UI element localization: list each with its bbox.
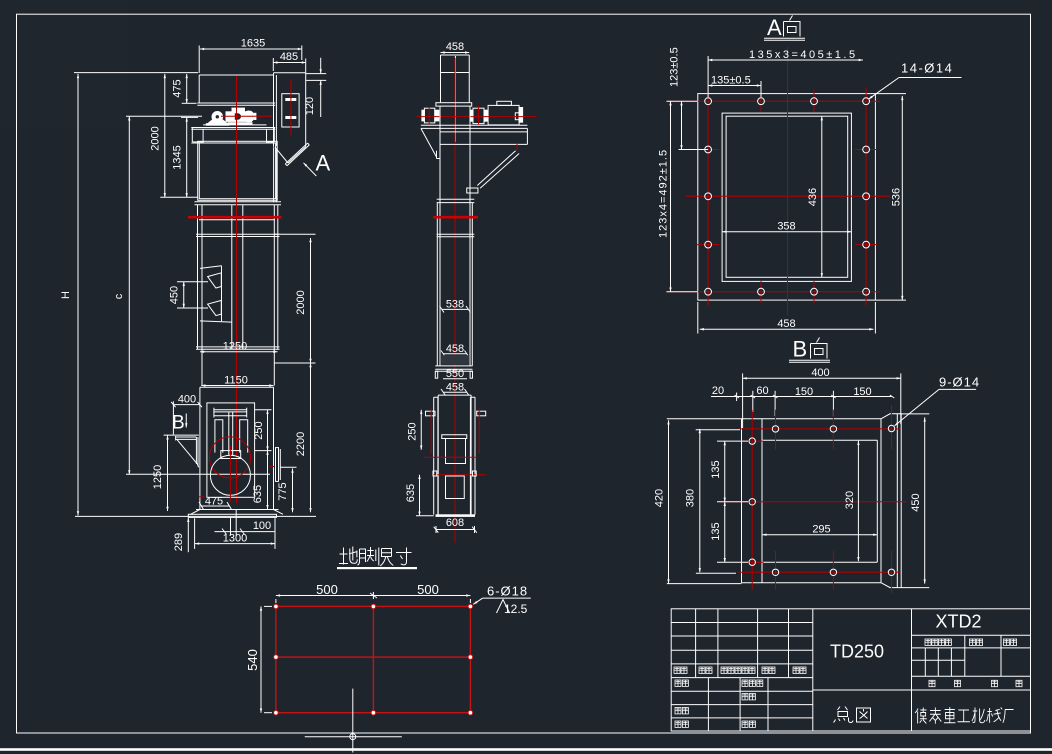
svg-text:536: 536	[891, 188, 903, 206]
svg-text:2000: 2000	[295, 290, 307, 314]
svg-text:450: 450	[169, 286, 181, 304]
svg-text:295: 295	[812, 523, 830, 535]
svg-text:358: 358	[777, 221, 795, 233]
svg-text:500: 500	[417, 582, 439, 597]
svg-text:540: 540	[245, 649, 260, 671]
svg-text:2000: 2000	[150, 126, 162, 150]
svg-text:12.5: 12.5	[504, 602, 528, 616]
svg-text:135x3=405±1.5: 135x3=405±1.5	[749, 49, 858, 61]
svg-text:c: c	[113, 293, 125, 299]
svg-text:538: 538	[446, 299, 464, 311]
svg-text:485: 485	[280, 51, 298, 63]
svg-text:458: 458	[446, 41, 464, 53]
svg-text:60: 60	[756, 385, 768, 397]
svg-text:TD250: TD250	[830, 642, 884, 662]
svg-text:A: A	[767, 15, 782, 40]
svg-text:635: 635	[405, 484, 417, 502]
svg-text:123x4=492±1.5: 123x4=492±1.5	[658, 149, 670, 238]
svg-text:475: 475	[172, 79, 184, 97]
svg-text:400: 400	[178, 393, 196, 405]
svg-text:100: 100	[253, 520, 271, 532]
svg-text:458: 458	[446, 382, 464, 394]
svg-text:550: 550	[446, 368, 464, 380]
svg-text:B: B	[172, 413, 185, 434]
svg-text:500: 500	[316, 582, 338, 597]
svg-text:1250: 1250	[152, 465, 164, 489]
svg-text:14-Ø14: 14-Ø14	[901, 61, 953, 76]
svg-text:150: 150	[795, 386, 813, 398]
svg-text:775: 775	[277, 482, 289, 500]
svg-text:475: 475	[205, 496, 223, 508]
svg-text:1250: 1250	[223, 340, 247, 352]
svg-text:320: 320	[844, 491, 856, 509]
svg-text:635: 635	[252, 485, 264, 503]
svg-text:1150: 1150	[224, 374, 248, 386]
svg-text:135±0.5: 135±0.5	[711, 75, 751, 87]
svg-text:608: 608	[446, 517, 464, 529]
svg-text:458: 458	[777, 318, 795, 330]
svg-text:H: H	[60, 291, 72, 299]
svg-text:1635: 1635	[241, 38, 265, 50]
svg-text:9-Ø14: 9-Ø14	[939, 375, 980, 390]
svg-text:2200: 2200	[295, 432, 307, 456]
svg-text:250: 250	[253, 421, 265, 439]
svg-text:250: 250	[407, 422, 419, 440]
svg-text:20: 20	[712, 385, 724, 397]
svg-text:458: 458	[446, 343, 464, 355]
svg-text:450: 450	[910, 493, 922, 511]
svg-text:1345: 1345	[172, 145, 184, 169]
svg-text:1300: 1300	[223, 533, 247, 545]
svg-text:420: 420	[654, 489, 666, 507]
svg-text:6-Ø18: 6-Ø18	[487, 584, 528, 599]
svg-text:400: 400	[811, 367, 829, 379]
svg-text:B: B	[793, 337, 808, 362]
svg-text:XTD2: XTD2	[935, 612, 981, 632]
svg-text:A: A	[316, 151, 331, 176]
svg-text:123±0.5: 123±0.5	[669, 47, 681, 87]
svg-text:436: 436	[807, 188, 819, 206]
svg-text:135: 135	[710, 460, 722, 478]
svg-text:289: 289	[173, 533, 185, 551]
svg-text:150: 150	[853, 386, 871, 398]
svg-text:135: 135	[710, 522, 722, 540]
svg-text:380: 380	[685, 489, 697, 507]
